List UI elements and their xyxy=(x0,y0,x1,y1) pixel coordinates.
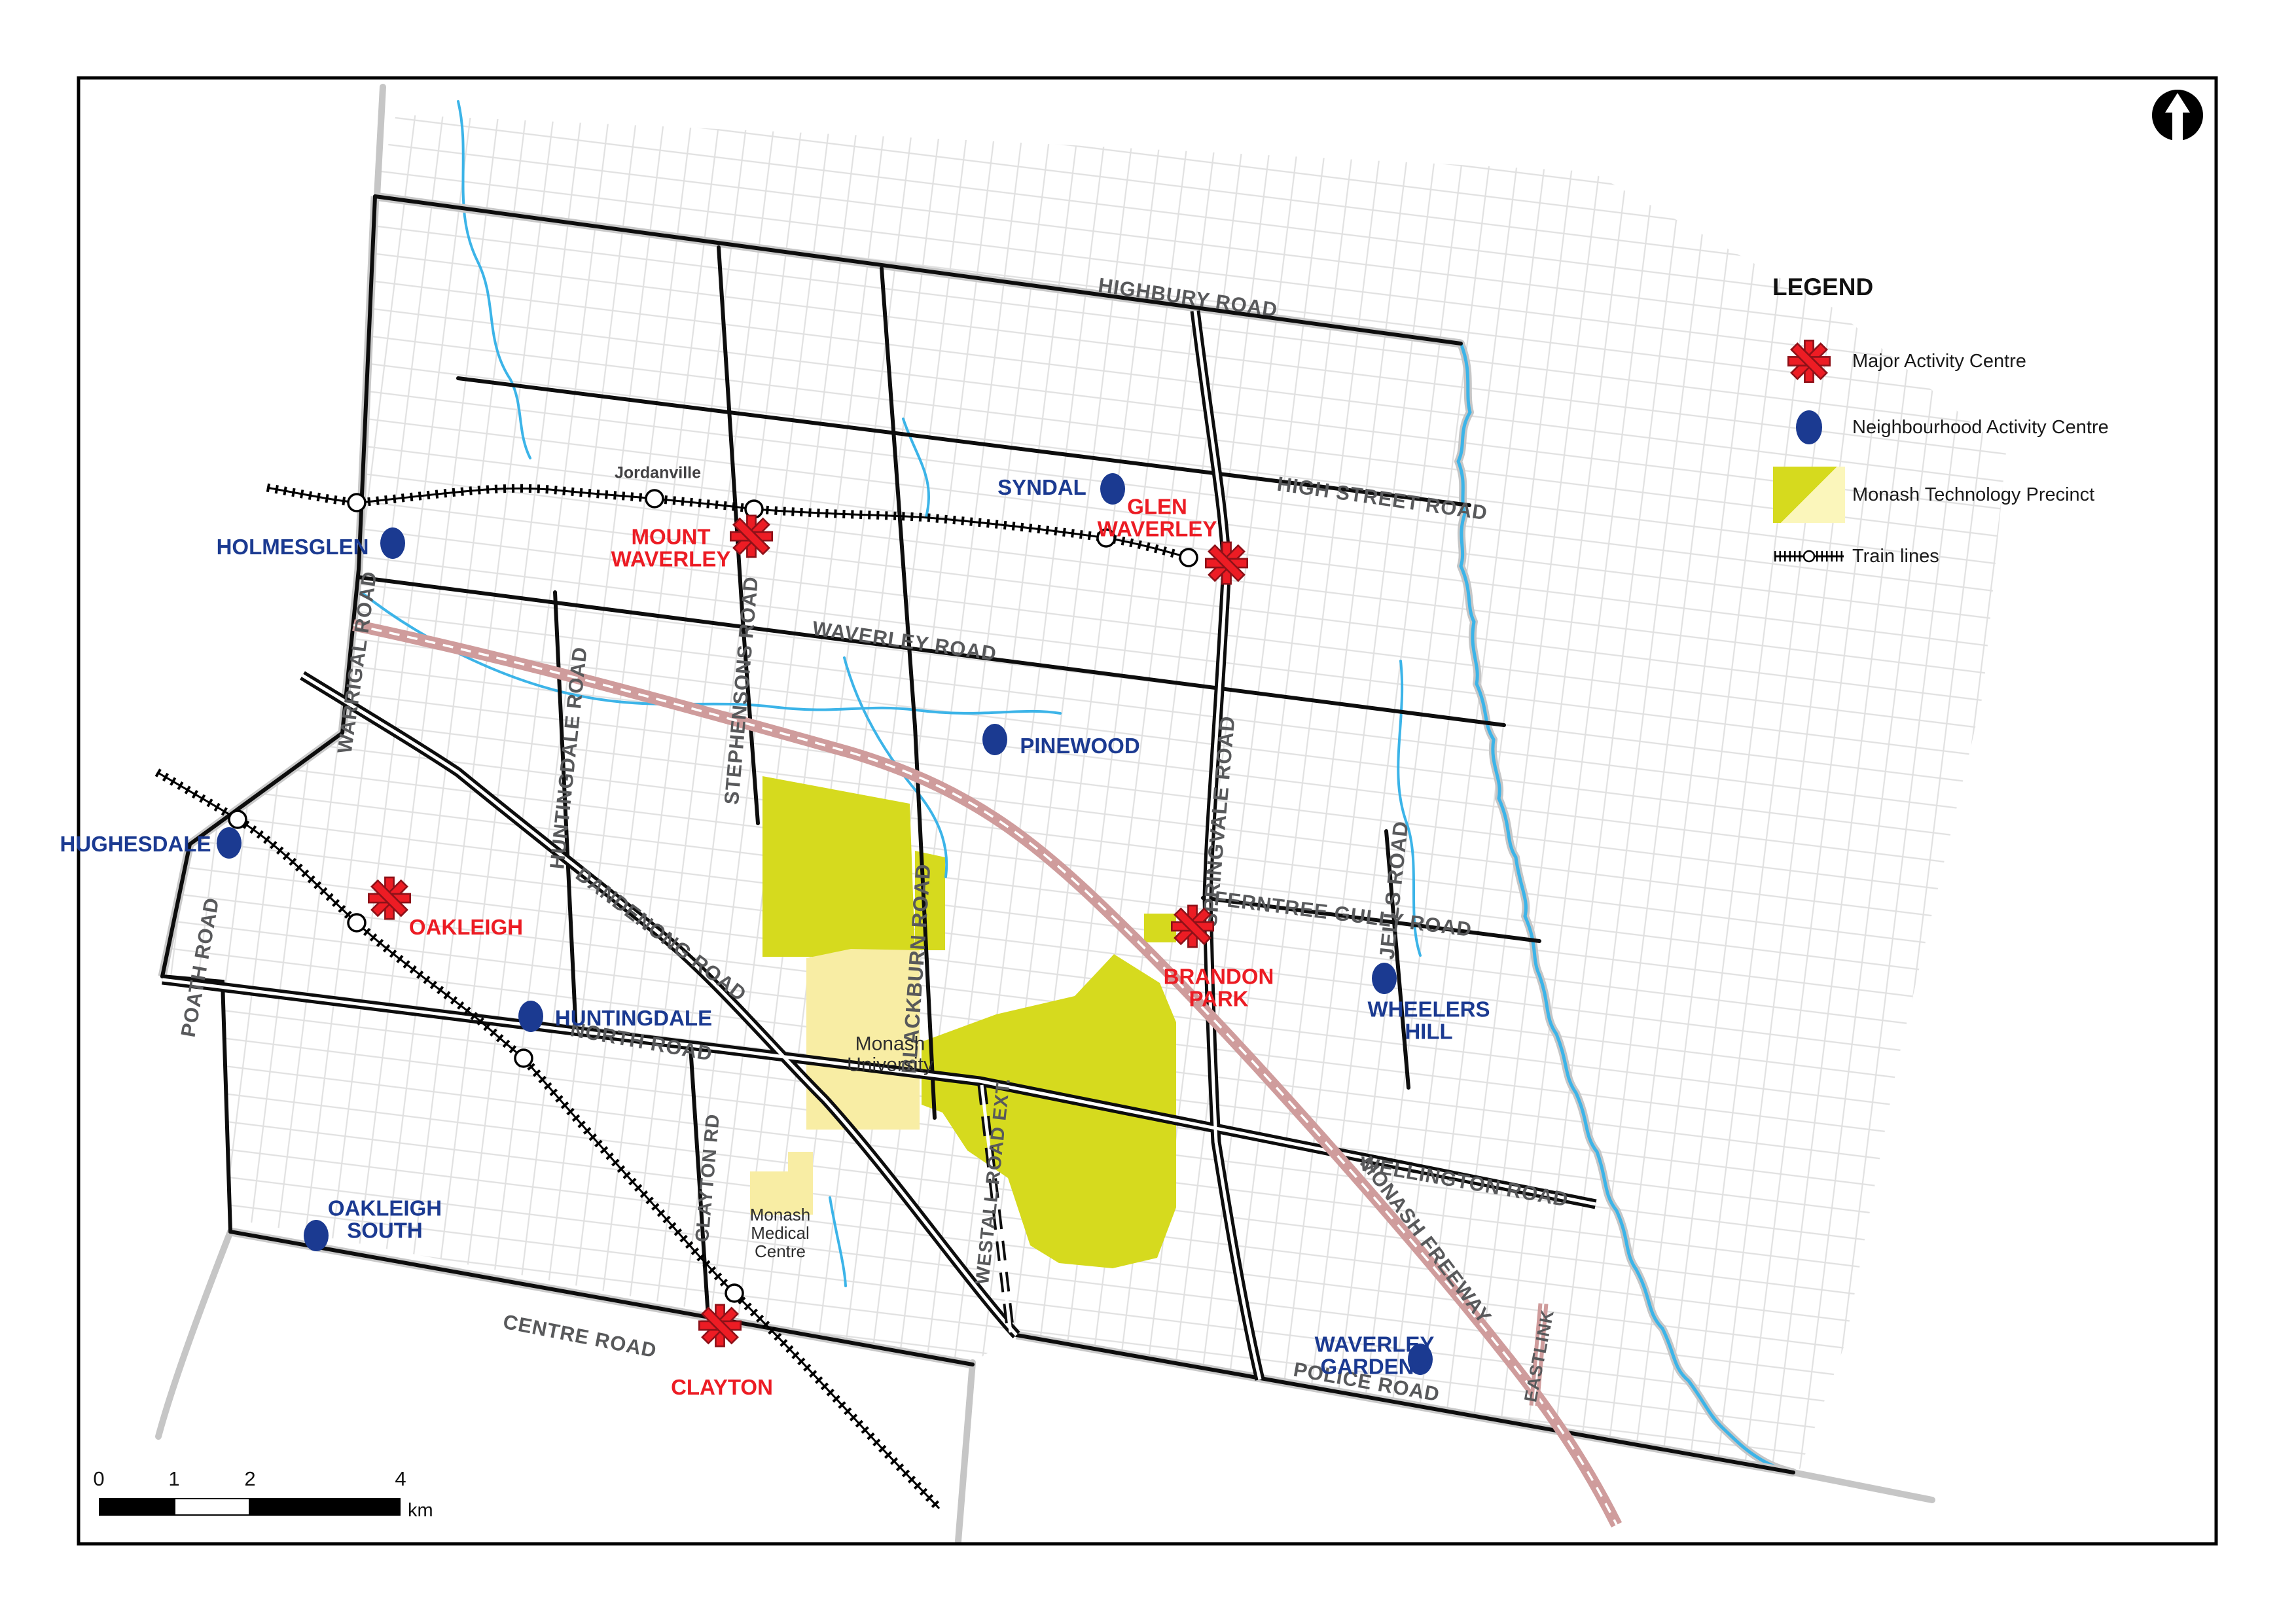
road-label-warrigal-road: WARRIGAL ROAD xyxy=(333,569,382,755)
neighbourhood-activity-label-pinewood: PINEWOOD xyxy=(1020,735,1139,757)
major-activity-marker-mount-waverley[interactable] xyxy=(730,515,773,562)
road-label-centre-road: CENTRE ROAD xyxy=(501,1310,659,1363)
road-label-dandenong-road: DANDENONG ROAD xyxy=(571,863,751,1007)
place-label-monash-university: MonashUniversity xyxy=(847,1034,933,1077)
road-label-eastlink: EASTLINK xyxy=(1520,1308,1558,1404)
road-label-ferntree-gully-road: FERNTREE GULLY ROAD xyxy=(1213,887,1473,942)
map-overlay: HIGHBURY ROADHIGH STREET ROADWAVERLEY RO… xyxy=(0,0,2296,1623)
neighbourhood-activity-marker-wheelers-hill[interactable] xyxy=(1372,963,1397,994)
road-label-jells-road: JELLS ROAD xyxy=(1374,819,1413,960)
neighbourhood-activity-marker-hughesdale[interactable] xyxy=(217,827,242,859)
road-label-clayton-rd: CLAYTON RD xyxy=(692,1113,725,1243)
major-activity-label-oakleigh: OAKLEIGH xyxy=(409,916,523,938)
road-label-huntingdale-road: HUNTINGDALE ROAD xyxy=(545,645,592,870)
neighbourhood-activity-label-huntingdale: HUNTINGDALE xyxy=(555,1007,712,1029)
neighbourhood-activity-label-wheelers-hill: WHEELERSHILL xyxy=(1367,999,1490,1044)
neighbourhood-activity-label-oakleigh-south: OAKLEIGHSOUTH xyxy=(328,1198,442,1243)
road-label-stephensons-road: STEPHENSONS ROAD xyxy=(720,575,763,806)
place-label-jordanville: Jordanville xyxy=(615,465,701,482)
neighbourhood-activity-label-hughesdale: HUGHESDALE xyxy=(60,833,211,855)
major-activity-marker-glen-waverley[interactable] xyxy=(1205,542,1248,588)
road-label-high-street-road: HIGH STREET ROAD xyxy=(1276,473,1489,526)
neighbourhood-activity-marker-huntingdale[interactable] xyxy=(518,1001,543,1032)
neighbourhood-activity-label-syndal: SYNDAL xyxy=(997,476,1086,499)
major-activity-label-clayton: CLAYTON xyxy=(671,1376,773,1399)
neighbourhood-activity-marker-pinewood[interactable] xyxy=(982,724,1007,755)
major-activity-marker-brandon-park[interactable] xyxy=(1171,905,1214,952)
neighbourhood-activity-marker-holmesglen[interactable] xyxy=(380,527,405,559)
major-activity-marker-clayton[interactable] xyxy=(698,1304,742,1351)
place-label-monash-medical-centre: MonashMedicalCentre xyxy=(750,1205,811,1260)
road-label-westall-road-ext-: WESTALL ROAD EXT. xyxy=(972,1077,1015,1286)
road-label-waverley-road: WAVERLEY ROAD xyxy=(811,616,998,666)
neighbourhood-activity-label-holmesglen: HOLMESGLEN xyxy=(217,536,369,558)
major-activity-marker-oakleigh[interactable] xyxy=(368,877,411,923)
road-label-poath-road: POATH ROAD xyxy=(177,895,224,1039)
neighbourhood-activity-label-waverley-gardens: WAVERLEYGARDENS xyxy=(1315,1334,1435,1379)
road-label-highbury-road: HIGHBURY ROAD xyxy=(1097,274,1280,322)
major-activity-label-brandon-park: BRANDONPARK xyxy=(1164,966,1274,1011)
monash-activity-centres-map: LEGEND Major Activity Centre Neighbourho… xyxy=(0,0,2296,1623)
major-activity-label-mount-waverley: MOUNTWAVERLEY xyxy=(611,526,731,571)
neighbourhood-activity-marker-oakleigh-south[interactable] xyxy=(304,1220,329,1251)
neighbourhood-activity-marker-syndal[interactable] xyxy=(1100,473,1125,505)
